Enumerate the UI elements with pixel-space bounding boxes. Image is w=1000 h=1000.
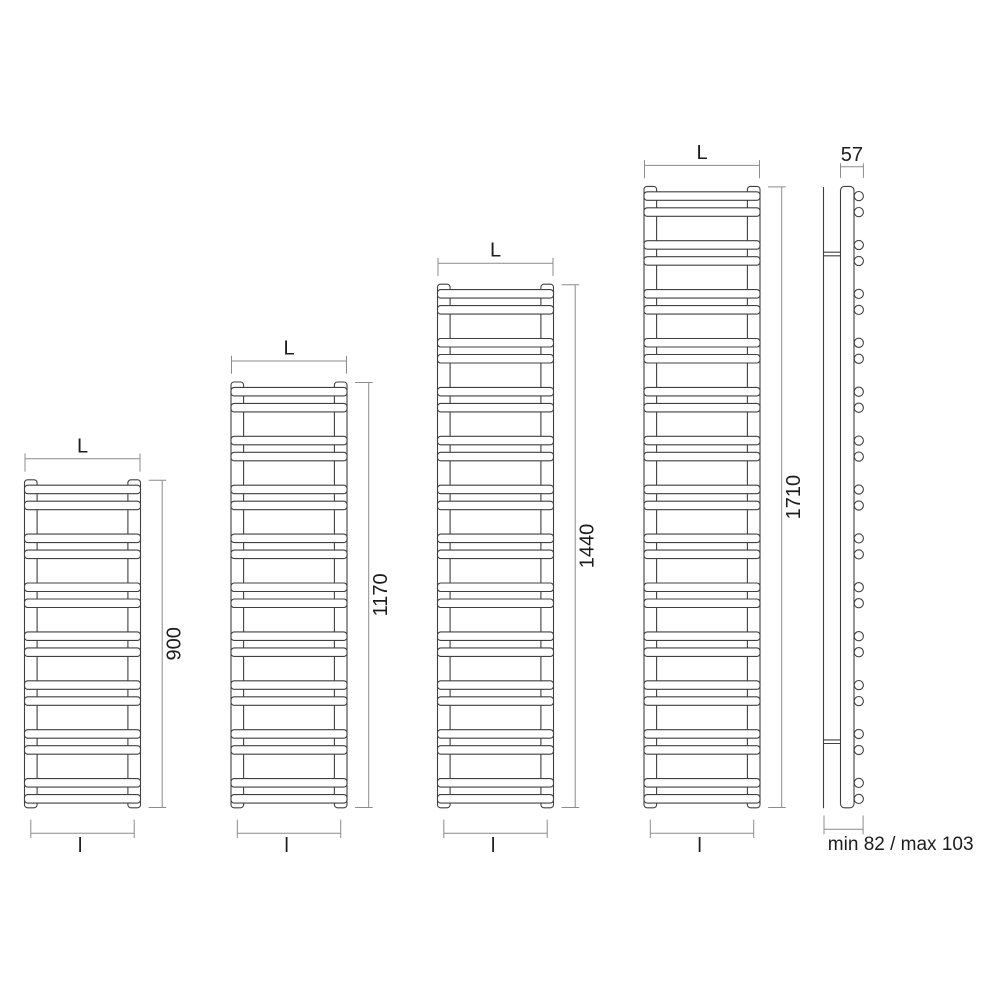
svg-text:L: L <box>490 240 501 262</box>
svg-text:1170: 1170 <box>370 573 392 616</box>
svg-text:l: l <box>491 835 495 857</box>
svg-text:L: L <box>77 435 88 457</box>
svg-text:1710: 1710 <box>783 475 805 519</box>
svg-text:1440: 1440 <box>577 524 599 569</box>
svg-text:l: l <box>78 835 82 857</box>
svg-text:900: 900 <box>164 627 186 660</box>
svg-text:l: l <box>697 835 701 857</box>
svg-text:57: 57 <box>841 144 863 166</box>
svg-text:L: L <box>696 142 707 164</box>
svg-text:min 82 / max 103: min 82 / max 103 <box>828 834 974 855</box>
svg-text:l: l <box>284 835 288 857</box>
svg-text:L: L <box>283 338 294 360</box>
